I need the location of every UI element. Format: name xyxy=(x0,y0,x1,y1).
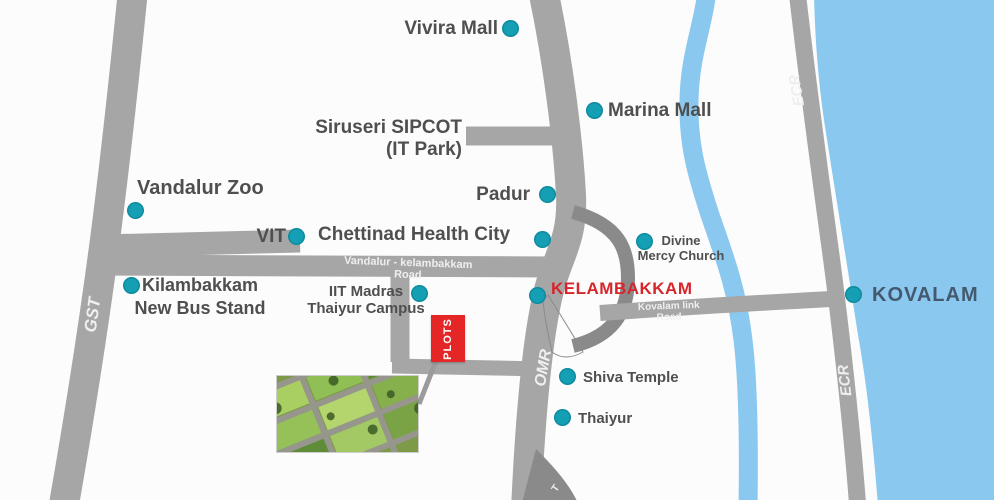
thaiyur-dot xyxy=(554,409,571,426)
sea-area xyxy=(814,0,994,500)
padur-dot xyxy=(539,186,556,203)
siruseri-sipcot-label: Siruseri SIPCOT (IT Park) xyxy=(300,117,462,161)
siruseri-sipcot-line1: Siruseri SIPCOT xyxy=(300,117,462,139)
kovalam-link-road-label: Kovalam link Road xyxy=(629,300,710,325)
kelambakkam-dot xyxy=(529,287,546,304)
plots-aerial-image xyxy=(277,376,418,452)
kelambakkam-label: KELAMBAKKAM xyxy=(551,279,692,299)
location-map: PLOTS Vivira Mall Marina Mall Siruseri S… xyxy=(0,0,994,500)
kovalam-label: KOVALAM xyxy=(872,284,979,307)
plots-access-road xyxy=(392,366,545,369)
shiva-temple-dot xyxy=(559,368,576,385)
padur-label: Padur xyxy=(430,184,530,206)
marina-mall-dot xyxy=(586,102,603,119)
siruseri-sipcot-line2: (IT Park) xyxy=(300,139,462,161)
kilambakkam-bus-label: Kilambakkam New Bus Stand xyxy=(118,274,282,321)
map-canvas xyxy=(0,0,994,500)
iit-madras-label: IIT Madras Thaiyur Campus xyxy=(296,283,436,318)
divine-mercy-line1: Divine xyxy=(629,234,733,249)
chettinad-label: Chettinad Health City xyxy=(318,224,510,246)
divine-mercy-label: Divine Mercy Church xyxy=(629,234,733,264)
thaiyur-label: Thaiyur xyxy=(578,410,632,427)
plots-marker: PLOTS xyxy=(431,315,465,362)
vandalur-zoo-label: Vandalur Zoo xyxy=(137,177,264,200)
plots-aerial-art xyxy=(277,376,418,452)
vit-label: VIT xyxy=(238,226,286,248)
vandalur-zoo-dot xyxy=(127,202,144,219)
iit-madras-line2: Thaiyur Campus xyxy=(296,300,436,317)
kovalam-dot xyxy=(845,286,862,303)
chettinad-dot xyxy=(534,231,551,248)
kilambakkam-bus-line1: Kilambakkam xyxy=(118,274,282,297)
iit-madras-line1: IIT Madras xyxy=(296,283,436,300)
shiva-temple-label: Shiva Temple xyxy=(583,369,679,386)
divine-mercy-line2: Mercy Church xyxy=(629,249,733,264)
marina-mall-label: Marina Mall xyxy=(608,100,711,122)
vivira-mall-dot xyxy=(502,20,519,37)
vivira-mall-label: Vivira Mall xyxy=(368,18,498,40)
kilambakkam-bus-line2: New Bus Stand xyxy=(118,297,282,320)
plots-marker-label: PLOTS xyxy=(442,318,454,360)
vit-dot xyxy=(288,228,305,245)
